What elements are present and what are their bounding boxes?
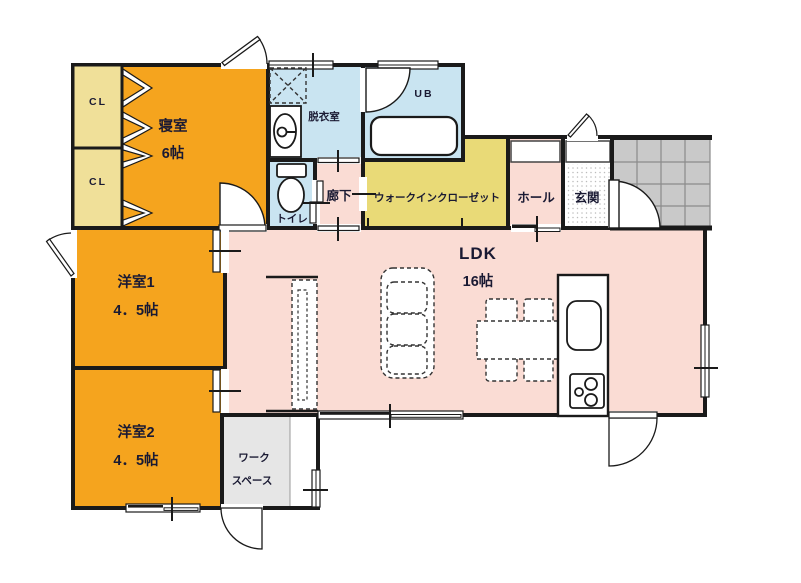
tv-icon [298, 290, 307, 400]
label-workspace-1: ワーク [238, 452, 270, 464]
bathtub [371, 117, 457, 155]
label-entrance: 玄関 [574, 190, 599, 205]
kitchen-sink [567, 301, 601, 350]
entrance-window [567, 114, 598, 141]
kitchen-stove [570, 374, 604, 408]
workspace-exterior-door [221, 504, 263, 549]
label-ldk-size: 16帖 [463, 272, 494, 290]
washbasin [270, 106, 301, 157]
label-ldk: LDK [459, 244, 497, 263]
label-closet-1: CL [89, 96, 107, 108]
label-western-2-size: 4．5帖 [113, 451, 159, 469]
sofa-icon [381, 268, 434, 378]
label-bedroom: 寝室 [159, 117, 188, 135]
floor-plan-page: CL CL 寝室 6帖 脱衣室 UB トイレ 廊下 ウォークインクローゼット ホ… [0, 0, 801, 578]
toilet-fixture [277, 164, 306, 212]
western1-window [47, 230, 78, 278]
bedroom-exterior-door [221, 37, 267, 70]
label-workspace-2: スペース [232, 475, 273, 487]
floor-plan-drawing: CL CL 寝室 6帖 脱衣室 UB トイレ 廊下 ウォークインクローゼット ホ… [0, 0, 801, 578]
room-closet-2 [73, 148, 122, 228]
entrance-cabinet [566, 141, 610, 162]
label-closet-2: CL [89, 176, 107, 188]
dining-set-icon [477, 299, 558, 381]
label-hallway: 廊下 [326, 188, 352, 203]
room-western-1 [73, 228, 225, 368]
shoe-cabinet [511, 141, 560, 162]
label-hall: ホール [517, 191, 555, 205]
kitchen-counter [558, 275, 608, 416]
label-toilet: トイレ [276, 213, 308, 225]
label-unit-bath: UB [414, 88, 433, 100]
label-western-2: 洋室2 [117, 423, 154, 441]
label-dressing: 脱衣室 [308, 110, 340, 123]
label-walk-in-closet: ウォークインクローゼット [374, 191, 500, 204]
label-western-1-size: 4．5帖 [113, 301, 159, 319]
kitchen-back-door [609, 411, 657, 466]
label-bedroom-size: 6帖 [162, 144, 185, 162]
label-western-1: 洋室1 [117, 273, 154, 291]
